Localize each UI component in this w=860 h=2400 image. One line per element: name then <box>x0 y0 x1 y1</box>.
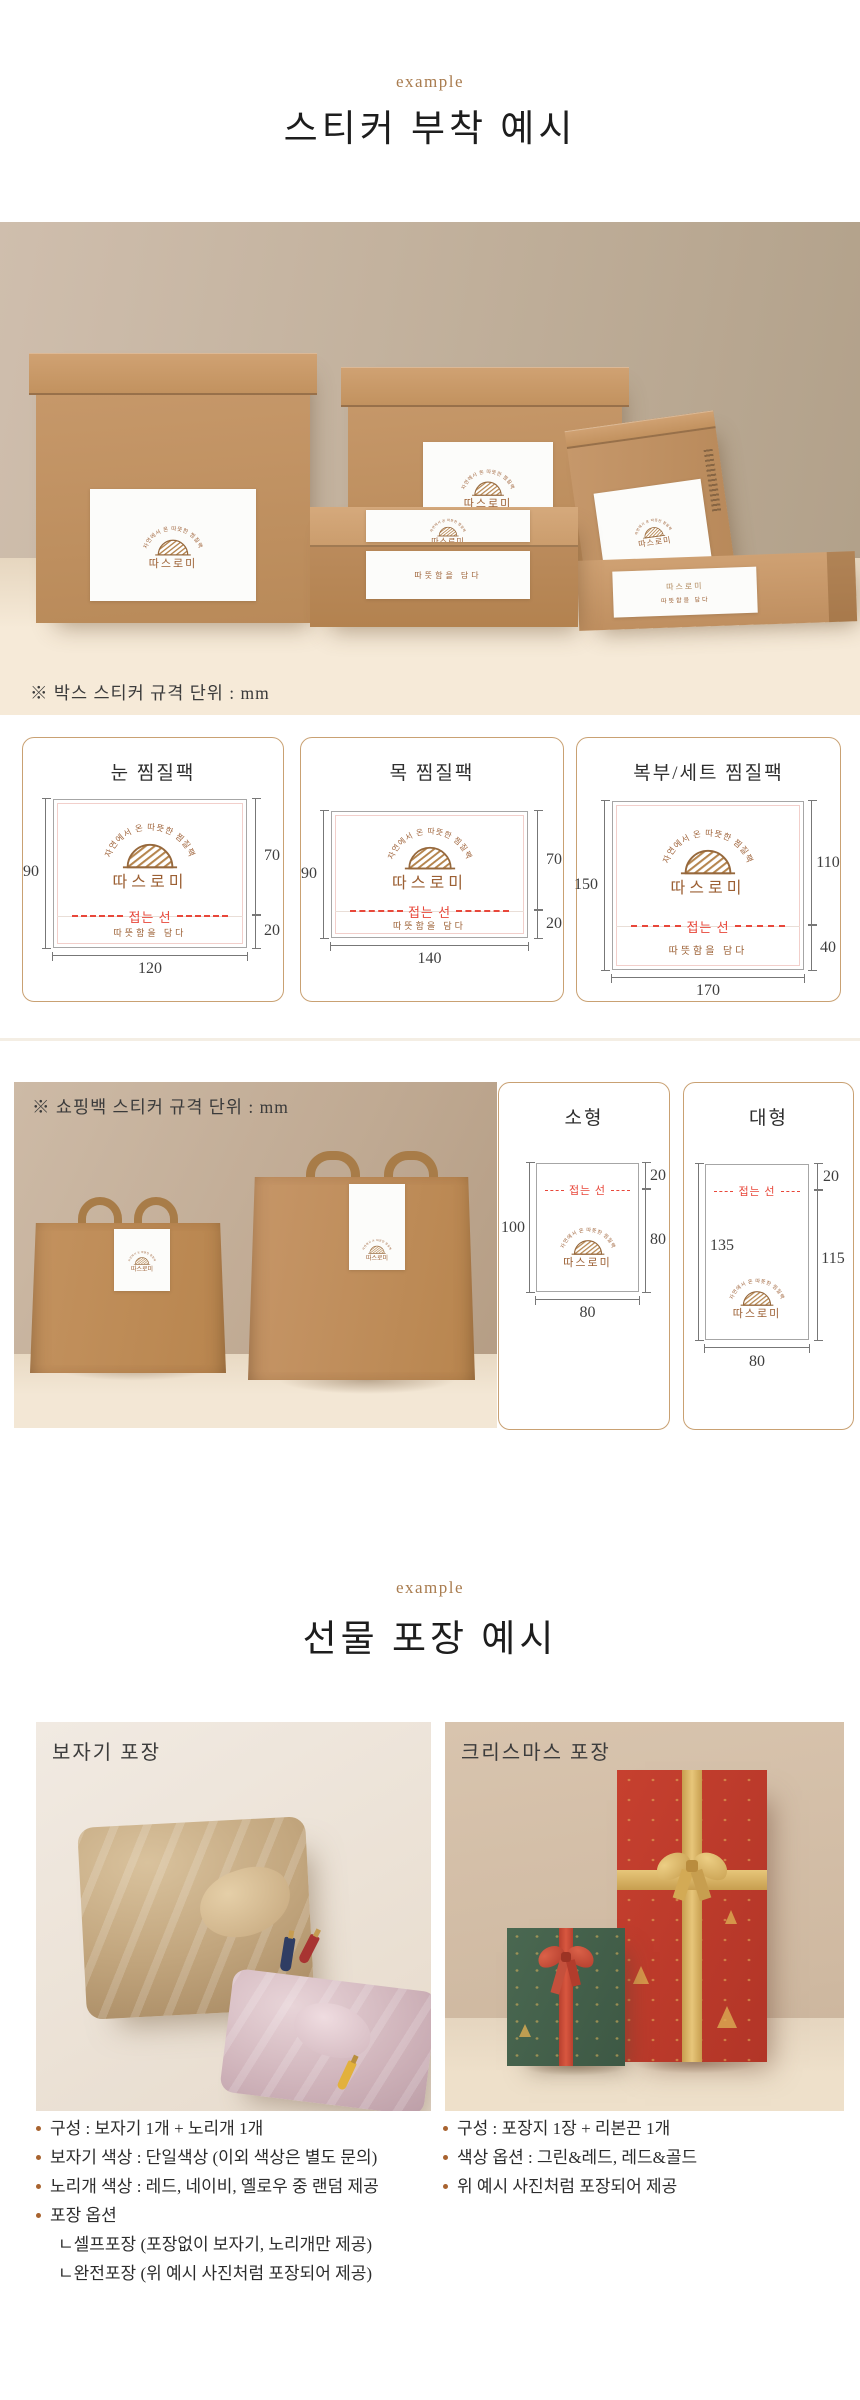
fold-label: 접는 선 <box>128 907 171 926</box>
bag-handle <box>134 1197 178 1225</box>
tree-motif <box>633 1966 649 1984</box>
kraft-box-wide: 자연에서 온 따뜻한 찜질팩 따스로미 따뜻함을 담다 <box>310 507 578 627</box>
bullet-dot <box>36 2126 41 2131</box>
brand-name: 따스로미 <box>131 1264 153 1273</box>
brand-tagline: 따뜻함을 담다 <box>661 594 710 605</box>
dim-line-right-top <box>811 801 812 925</box>
dim-line-right-top <box>817 1164 818 1190</box>
list-item: 구성 : 포장지 1장 + 리본끈 1개 <box>443 2114 843 2143</box>
dim-line-right-top <box>645 1163 646 1189</box>
dim-right-bottom: 20 <box>259 922 285 940</box>
brand-logo-mark: 자연에서 온 따뜻한 찜질팩 <box>723 1273 791 1308</box>
dim-width: 170 <box>612 982 804 1000</box>
bag-handle <box>306 1151 360 1181</box>
box-lid <box>341 367 629 407</box>
spec-card-title: 소형 <box>499 1103 669 1130</box>
brand-tagline: 따뜻함을 담다 <box>54 926 246 939</box>
spec-card-abdomen-pack: 복부/세트 찜질팩 자연에서 온 따뜻한 찜질팩 따스로미 접는 선 따뜻함을 … <box>576 737 841 1002</box>
sticker-preview: 접는 선 135 자연에서 온 따뜻한 찜질팩 따스로미 <box>705 1164 809 1340</box>
section-eyebrow: example <box>0 1578 860 1598</box>
tree-motif <box>717 2006 737 2028</box>
dim-width: 80 <box>536 1304 639 1322</box>
list-item-text: ㄴ셀프포장 (포장없이 보자기, 노리개만 제공) <box>58 2230 372 2259</box>
spec-card-neck-pack: 목 찜질팩 자연에서 온 따뜻한 찜질팩 따스로미 접는 선 따뜻함을 담다 9… <box>300 737 564 1002</box>
dim-right-top: 20 <box>647 1167 669 1185</box>
brand-logo: 자연에서 온 따뜻한 찜질팩 따스로미 <box>378 819 482 893</box>
brand-logo: 자연에서 온 따뜻한 찜질팩 따스로미 <box>628 511 678 550</box>
dim-right-top: 20 <box>820 1168 842 1186</box>
dim-line-bottom <box>612 977 804 978</box>
barcode-strip <box>704 449 722 514</box>
brand-tagline: 따뜻함을 담다 <box>613 942 803 957</box>
dim-right-top: 70 <box>259 847 285 865</box>
bullet-dot <box>443 2184 448 2189</box>
gold-ribbon-bow <box>655 1846 729 1892</box>
christmas-details: 구성 : 포장지 1장 + 리본끈 1개 색상 옵션 : 그린&레드, 레드&골… <box>443 2114 843 2201</box>
bullet-dot <box>36 2155 41 2160</box>
brand-logo: 자연에서 온 따뜻한 찜질팩 따스로미 <box>94 814 206 892</box>
bullet-dot <box>443 2126 448 2131</box>
dim-line-right-top <box>255 799 256 915</box>
dim-line-right-top <box>537 811 538 910</box>
section-seam <box>0 1038 860 1041</box>
list-item-text: 포장 옵션 <box>50 2201 117 2230</box>
list-item: 색상 옵션 : 그린&레드, 레드&골드 <box>443 2143 843 2172</box>
list-subitem: ㄴ셀프포장 (포장없이 보자기, 노리개만 제공) <box>36 2230 446 2259</box>
brand-logo: 자연에서 온 따뜻한 찜질팩 따스로미 <box>554 1222 622 1270</box>
page-title-gift: 선물 포장 예시 <box>0 1608 860 1662</box>
box-sticker-strip: 따스로미 따뜻함을 담다 <box>612 567 758 618</box>
dim-line-left <box>604 801 605 970</box>
kraft-box-large: 자연에서 온 따뜻한 찜질팩 따스로미 <box>36 353 310 623</box>
fold-line: 접는 선 <box>72 907 228 925</box>
dim-right-bottom: 20 <box>541 915 567 933</box>
list-item-text: 구성 : 보자기 1개 + 노리개 1개 <box>50 2114 263 2143</box>
bullet-dot <box>36 2184 41 2189</box>
fold-line: 접는 선 <box>714 1184 800 1198</box>
sticker-preview: 자연에서 온 따뜻한 찜질팩 따스로미 접는 선 따뜻함을 담다 <box>331 811 528 938</box>
christmas-photo: 크리스마스 포장 <box>445 1722 844 2111</box>
dim-line-bottom <box>53 955 247 956</box>
bullet-dot <box>443 2155 448 2160</box>
list-item-text: 노리개 색상 : 레드, 네이비, 옐로우 중 랜덤 제공 <box>50 2172 379 2201</box>
list-item-text: 위 예시 사진처럼 포장되어 제공 <box>457 2172 677 2201</box>
fold-line: 접는 선 <box>350 902 509 920</box>
box-lid <box>29 353 317 395</box>
bag-body: 자연에서 온 따뜻한 찜질팩 따스로미 <box>30 1223 226 1373</box>
brand-logo: 자연에서 온 따뜻한 찜질팩 따스로미 <box>426 515 470 542</box>
page-title-sticker: 스티커 부착 예시 <box>0 98 860 152</box>
bag-sticker-label: 자연에서 온 따뜻한 찜질팩 따스로미 <box>349 1184 405 1270</box>
brand-tagline: 따뜻함을 담다 <box>414 570 481 581</box>
brand-logo: 자연에서 온 따뜻한 찜질팩 따스로미 <box>125 1248 159 1273</box>
brand-logo-mark: 자연에서 온 따뜻한 찜질팩 <box>554 1222 622 1257</box>
sticker-preview: 자연에서 온 따뜻한 찜질팩 따스로미 접는 선 따뜻함을 담다 <box>53 799 247 948</box>
dim-left: 100 <box>499 1219 527 1237</box>
dim-line-right-bottom <box>255 915 256 948</box>
bullet-dot <box>36 2213 41 2218</box>
box-sticker-strip-top: 자연에서 온 따뜻한 찜질팩 따스로미 <box>366 510 530 542</box>
dim-right-bottom: 80 <box>647 1231 669 1249</box>
kraft-box-flat: 따스로미 따뜻함을 담다 <box>577 551 857 631</box>
spec-card-bag-large: 대형 접는 선 135 자연에서 온 따뜻한 찜질팩 따스로미 20 115 8… <box>683 1082 854 1430</box>
gold-ribbon-vertical <box>682 1770 702 2062</box>
dim-left: 150 <box>571 876 601 894</box>
box-sticker-label: 자연에서 온 따뜻한 찜질팩 따스로미 <box>90 489 256 601</box>
shopping-bag-photo: 자연에서 온 따뜻한 찜질팩 따스로미 자연에서 온 따뜻한 찜질팩 <box>14 1082 497 1428</box>
spec-card-title: 복부/세트 찜질팩 <box>577 758 840 785</box>
brand-logo-mark: 자연에서 온 따뜻한 찜질팩 <box>136 520 210 558</box>
dim-line-left <box>529 1163 530 1292</box>
dim-right-bottom: 115 <box>817 1250 849 1268</box>
photo-label: 크리스마스 포장 <box>461 1736 611 1765</box>
brand-logo-mark: 자연에서 온 따뜻한 찜질팩 <box>426 515 470 538</box>
brand-name: 따스로미 <box>666 580 704 592</box>
bojagi-pink-bundle <box>219 1968 431 2111</box>
list-item-text: ㄴ완전포장 (위 예시 사진처럼 포장되어 제공) <box>58 2259 372 2288</box>
list-item-text: 보자기 색상 : 단일색상 (이외 색상은 별도 문의) <box>50 2143 377 2172</box>
fold-label: 접는 선 <box>686 917 729 936</box>
dim-width: 80 <box>705 1353 809 1371</box>
brand-logo: 자연에서 온 따뜻한 찜질팩 따스로미 <box>359 1236 395 1262</box>
fold-label: 접는 선 <box>408 902 451 921</box>
brand-logo-mark: 자연에서 온 따뜻한 찜질팩 <box>652 820 764 878</box>
bojagi-photo: 보자기 포장 <box>36 1722 431 2111</box>
red-ribbon-bow <box>537 1940 595 1978</box>
brand-logo: 자연에서 온 따뜻한 찜질팩 따스로미 <box>652 820 764 898</box>
sticker-preview: 자연에서 온 따뜻한 찜질팩 따스로미 접는 선 따뜻함을 담다 <box>612 801 804 970</box>
brand-name: 따스로미 <box>733 1305 781 1321</box>
dim-width: 120 <box>53 960 247 978</box>
dim-line-right-bottom <box>537 910 538 938</box>
section-eyebrow: example <box>0 72 860 92</box>
brand-tagline: 따뜻함을 담다 <box>332 919 527 932</box>
fold-line: 접는 선 <box>631 917 785 935</box>
bag-handle <box>384 1151 438 1181</box>
fold-label: 접는 선 <box>738 1183 775 1199</box>
box-sticker-note: ※ 박스 스티커 규격 단위 : mm <box>30 680 270 705</box>
brand-logo-mark: 자연에서 온 따뜻한 찜질팩 <box>94 814 206 872</box>
fold-line: 접는 선 <box>545 1183 630 1197</box>
gift-box-green <box>507 1928 625 2066</box>
shopping-bag-large: 자연에서 온 따뜻한 찜질팩 따스로미 <box>248 1151 475 1380</box>
brand-name: 따스로미 <box>431 536 464 542</box>
list-item-text: 색상 옵션 : 그린&레드, 레드&골드 <box>457 2143 697 2172</box>
spec-card-title: 눈 찜질팩 <box>23 758 283 785</box>
brand-name: 따스로미 <box>671 874 746 898</box>
dim-line-left <box>698 1164 699 1340</box>
list-item: 위 예시 사진처럼 포장되어 제공 <box>443 2172 843 2201</box>
dim-left: 90 <box>297 865 321 883</box>
bag-sticker-label: 자연에서 온 따뜻한 찜질팩 따스로미 <box>114 1229 170 1291</box>
gift-box-red <box>617 1770 767 2062</box>
dim-line-left <box>323 811 324 938</box>
shopping-bag-small: 자연에서 온 따뜻한 찜질팩 따스로미 <box>30 1197 226 1373</box>
dim-width: 140 <box>331 950 528 968</box>
spec-card-title: 대형 <box>684 1103 853 1130</box>
spec-card-bag-small: 소형 접는 선 자연에서 온 따뜻한 찜질팩 따스로미 100 20 80 80 <box>498 1082 670 1430</box>
list-item-text: 구성 : 포장지 1장 + 리본끈 1개 <box>457 2114 670 2143</box>
spec-card-title: 목 찜질팩 <box>301 758 563 785</box>
brand-logo-mark: 자연에서 온 따뜻한 찜질팩 <box>455 464 521 498</box>
dim-left: 135 <box>710 1237 742 1255</box>
list-item: 보자기 색상 : 단일색상 (이외 색상은 별도 문의) <box>36 2143 446 2172</box>
box-photo: 자연에서 온 따뜻한 찜질팩 따스로미 자연에서 온 따뜻한 찜질팩 <box>0 222 860 715</box>
sticker-preview: 접는 선 자연에서 온 따뜻한 찜질팩 따스로미 <box>536 1163 639 1292</box>
brand-name: 따스로미 <box>563 1254 611 1270</box>
brand-logo-mark: 자연에서 온 따뜻한 찜질팩 <box>378 819 482 873</box>
dim-line-left <box>45 799 46 948</box>
box-end-flap <box>827 551 857 622</box>
brand-logo: 자연에서 온 따뜻한 찜질팩 따스로미 <box>136 520 210 571</box>
brand-logo: 자연에서 온 따뜻한 찜질팩 따스로미 <box>723 1273 791 1321</box>
brand-logo: 자연에서 온 따뜻한 찜질팩 따스로미 <box>455 464 521 511</box>
brand-name: 따스로미 <box>149 555 197 571</box>
list-item: 포장 옵션 <box>36 2201 446 2230</box>
bojagi-details: 구성 : 보자기 1개 + 노리개 1개 보자기 색상 : 단일색상 (이외 색… <box>36 2114 446 2288</box>
bag-handle <box>78 1197 122 1225</box>
bag-sticker-note: ※ 쇼핑백 스티커 규격 단위 : mm <box>32 1094 289 1119</box>
dim-right-top: 110 <box>813 854 843 872</box>
bag-body: 자연에서 온 따뜻한 찜질팩 따스로미 <box>248 1177 475 1380</box>
dim-left: 90 <box>19 863 43 881</box>
brand-name: 따스로미 <box>392 869 467 893</box>
dim-right-top: 70 <box>541 851 567 869</box>
dim-line-bottom <box>331 945 528 946</box>
dim-line-right-bottom <box>811 925 812 970</box>
tree-motif <box>725 1910 737 1924</box>
spec-card-eye-pack: 눈 찜질팩 자연에서 온 따뜻한 찜질팩 따스로미 접는 선 따뜻함을 담다 9… <box>22 737 284 1002</box>
list-item: 노리개 색상 : 레드, 네이비, 옐로우 중 랜덤 제공 <box>36 2172 446 2201</box>
brand-name: 따스로미 <box>113 868 188 892</box>
dim-line-right-bottom <box>645 1189 646 1292</box>
box-sticker-strip-front: 따뜻함을 담다 <box>366 551 530 599</box>
list-subitem: ㄴ완전포장 (위 예시 사진처럼 포장되어 제공) <box>36 2259 446 2288</box>
photo-label: 보자기 포장 <box>52 1736 161 1765</box>
dim-line-bottom <box>536 1299 639 1300</box>
fold-label: 접는 선 <box>569 1182 606 1198</box>
tree-motif <box>519 2024 531 2037</box>
brand-name: 따스로미 <box>366 1253 388 1262</box>
dim-right-bottom: 40 <box>815 939 841 957</box>
dim-line-bottom <box>705 1347 809 1348</box>
product-detail-page: example 스티커 부착 예시 자연에서 온 따뜻한 찜질팩 따스로미 <box>0 0 860 2400</box>
list-item: 구성 : 보자기 1개 + 노리개 1개 <box>36 2114 446 2143</box>
